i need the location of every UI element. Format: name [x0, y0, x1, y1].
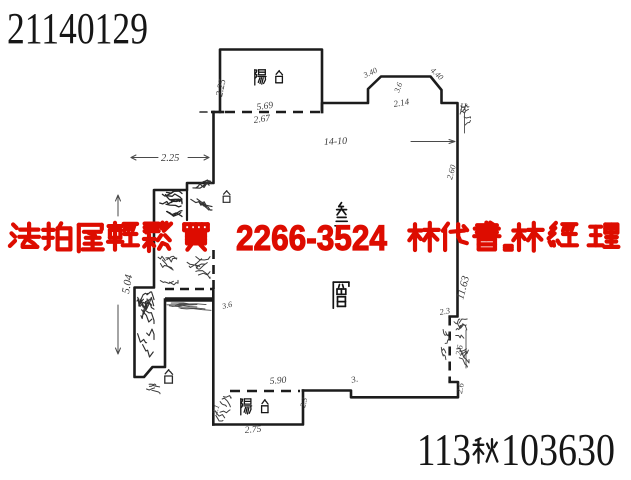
svg-text:2.3: 2.3 [439, 305, 451, 317]
svg-text:2.75: 2.75 [244, 425, 262, 436]
svg-text:14-10: 14-10 [324, 136, 348, 148]
svg-text:2266-3524: 2266-3524 [236, 219, 387, 258]
svg-text:21140129: 21140129 [7, 4, 148, 53]
svg-text:113: 113 [417, 425, 471, 475]
svg-text:5.90: 5.90 [269, 376, 287, 387]
svg-text:103630: 103630 [501, 425, 615, 475]
svg-text:2.25: 2.25 [161, 153, 179, 164]
